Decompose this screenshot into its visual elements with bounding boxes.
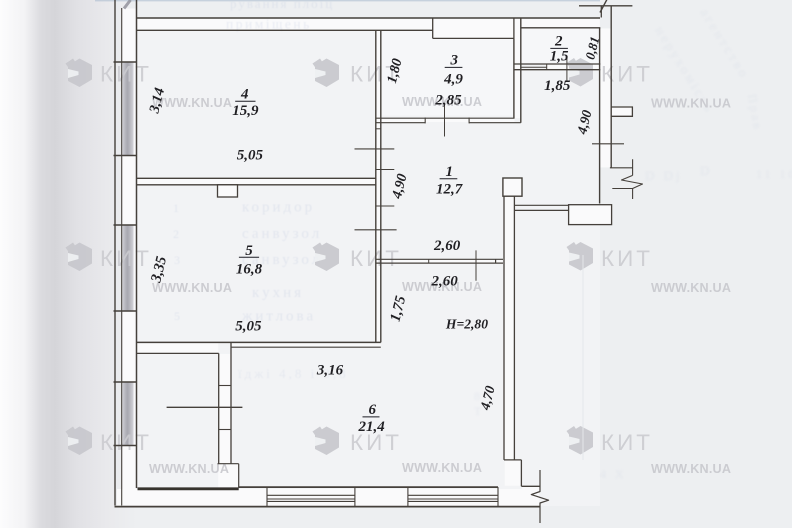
svg-text:2,60: 2,60 [430,274,458,290]
svg-text:WWW.KN.UA: WWW.KN.UA [651,281,731,295]
svg-text:5: 5 [174,309,183,323]
svg-text:КИТ: КИТ [100,430,152,455]
svg-text:5: 5 [245,243,253,259]
svg-text:рування плоіц: рування плоіц [230,0,334,11]
svg-text:2,60: 2,60 [433,238,461,254]
svg-text:2: 2 [554,34,563,50]
svg-text:5,05: 5,05 [235,319,262,335]
svg-text:2: 2 [173,227,182,241]
svg-text:4: 4 [240,87,249,103]
svg-text:H=2,80: H=2,80 [445,317,488,332]
svg-text:12,7: 12,7 [436,181,463,197]
svg-text:5,05: 5,05 [237,148,264,164]
svg-text:4,9: 4,9 [443,71,463,87]
svg-text:1,5: 1,5 [550,49,569,65]
svg-text:коридор: коридор [242,200,315,216]
svg-text:15,9: 15,9 [232,103,259,119]
svg-text:1: 1 [173,201,182,215]
svg-text:КИТ: КИТ [100,62,152,87]
svg-text:3: 3 [174,253,183,267]
svg-text:21,4: 21,4 [357,419,385,435]
svg-text:КИТ: КИТ [100,246,152,271]
svg-text:WWW.KN.UA: WWW.KN.UA [651,462,731,476]
svg-text:16,8: 16,8 [236,262,263,278]
svg-text:1,85: 1,85 [544,78,571,94]
svg-text:3,16: 3,16 [316,363,344,379]
svg-text:WWW.KN.UA: WWW.KN.UA [402,461,482,475]
svg-text:1: 1 [445,164,453,180]
svg-text:КИТ: КИТ [601,246,653,271]
svg-text:санвузол: санвузол [242,226,322,242]
svg-text:2,85: 2,85 [434,93,462,109]
svg-text:3: 3 [449,52,458,68]
svg-text:WWW.KN.UA: WWW.KN.UA [651,97,731,111]
svg-text:WWW.KN.UA: WWW.KN.UA [149,462,229,476]
svg-text:КИТ: КИТ [601,62,653,87]
svg-text:кухня: кухня [252,285,304,301]
svg-text:11 10 (1: 11 10 (1 [756,167,792,181]
svg-text:КИТ: КИТ [601,430,653,455]
svg-text:4 X: 4 X [600,467,627,481]
svg-text:6: 6 [368,402,376,418]
svg-text:D: D [700,163,712,178]
svg-text:D Dј: D Dј [645,168,683,183]
